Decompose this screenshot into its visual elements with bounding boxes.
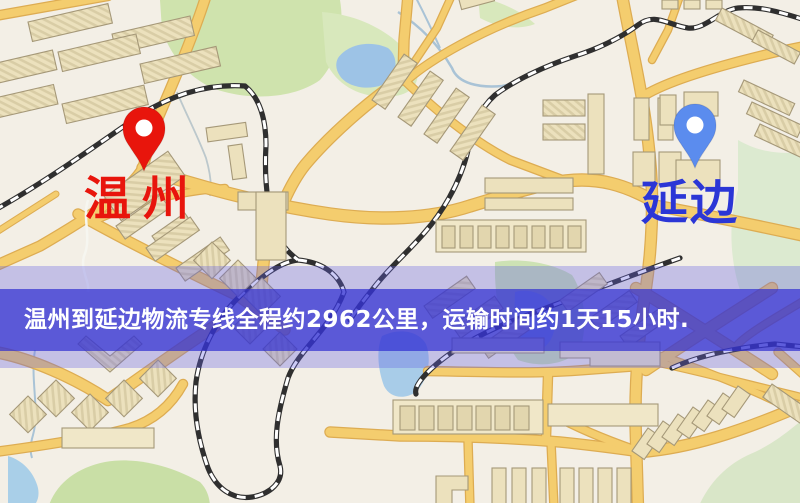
info-banner-text: 温州到延边物流专线全程约2962公里，运输时间约1天15小时.	[24, 289, 689, 351]
origin-city-label: 温州	[84, 176, 200, 223]
map-canvas	[0, 0, 800, 503]
destination-city-label: 延边	[641, 180, 739, 227]
map-screenshot: 温州 延边 温州到延边物流专线全程约2962公里，运输时间约1天15小时.	[0, 0, 800, 503]
